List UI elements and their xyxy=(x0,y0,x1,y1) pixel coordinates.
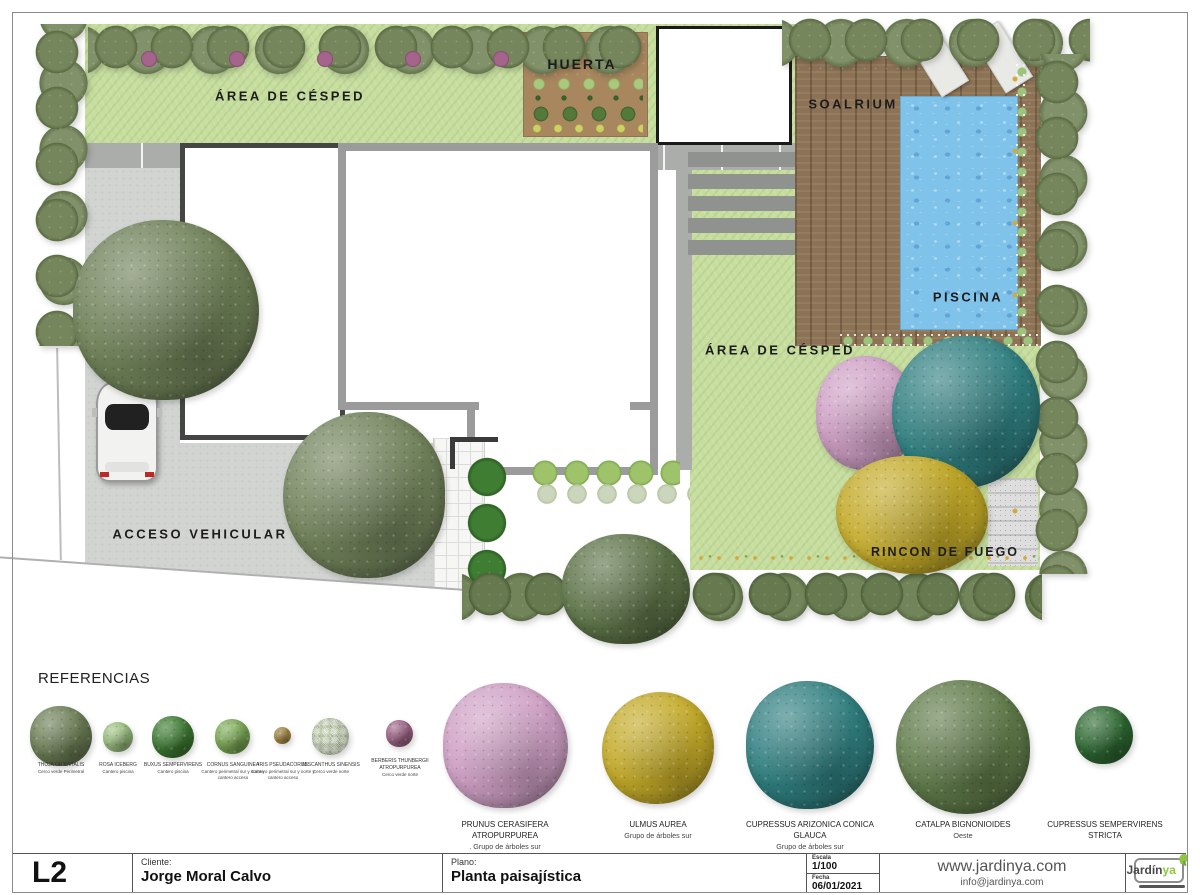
swatch-buxus-sempervirens xyxy=(152,716,194,758)
plan-cell: Plano: Planta paisajística xyxy=(442,854,807,893)
swatch-cornus-sanguinea xyxy=(215,719,250,754)
email-text: info@jardinya.com xyxy=(879,877,1125,888)
car-windshield xyxy=(105,404,149,430)
contact-cell: www.jardinya.com info@jardinya.com xyxy=(879,854,1126,893)
garage-building xyxy=(656,26,792,145)
car-rear xyxy=(105,462,149,472)
references-title: REFERENCIAS xyxy=(38,670,150,687)
ref-label-large: ULMUS AUREA Grupo de árboles sur xyxy=(573,820,743,841)
label-lawn-east: ÁREA DE CÉSPED xyxy=(705,343,855,358)
sheet-code: L2 xyxy=(12,854,132,892)
title-block: L2 Cliente: Jorge Moral Calvo Plano: Pla… xyxy=(12,853,1186,893)
east-hedge-cupressus xyxy=(1024,54,1090,574)
client-name: Jorge Moral Calvo xyxy=(141,868,271,885)
ref-label: BERBERIS THUNBERGII ATROPURPUREA Cerco v… xyxy=(365,758,435,778)
tree-catalpa-south xyxy=(283,412,445,578)
date-row: Fecha 06/01/2021 xyxy=(806,873,879,893)
plan-name: Planta paisajística xyxy=(451,868,581,885)
scale-row: Escala 1/100 xyxy=(806,854,879,873)
swatch-catalpa-bignonioides xyxy=(896,680,1030,814)
scale-value: 1/100 xyxy=(812,861,837,872)
site-boundary-west xyxy=(56,348,62,560)
website-text: www.jardinya.com xyxy=(879,858,1125,876)
date-value: 06/01/2021 xyxy=(812,881,862,892)
swatch-miscanthus-sinensis xyxy=(312,718,349,755)
label-huerta: HUERTA xyxy=(547,56,616,72)
label-acceso-vehicular: ACCESO VEHICULAR xyxy=(112,527,287,542)
ref-label-large: PRUNUS CERASIFERA ATROPURPUREA . Grupo d… xyxy=(440,820,570,851)
swatch-iris-pseudacorus xyxy=(274,727,291,744)
berberis-cluster-row xyxy=(105,46,555,72)
huerta-row-seedlings xyxy=(528,93,643,103)
wall-corner xyxy=(450,437,498,442)
label-soalrium: SOALRIUM xyxy=(808,97,897,112)
label-lawn-north: ÁREA DE CÉSPED xyxy=(215,89,365,104)
car-mirror xyxy=(157,408,162,417)
car-taillight xyxy=(100,472,109,477)
drawing-sheet: ÁREA DE CÉSPED HUERTA SOALRIUM PISCINA Á… xyxy=(0,0,1200,895)
plan-label: Plano: xyxy=(451,857,477,867)
swatch-rosa-iceberg xyxy=(103,722,133,752)
sheet-code-cell: L2 xyxy=(12,854,133,893)
car-taillight xyxy=(145,472,154,477)
ref-label-large: CUPRESSUS SEMPERVIRENS STRICTA xyxy=(1030,820,1180,842)
swatch-cupressus-arizonica xyxy=(746,681,874,809)
garden-steps xyxy=(688,152,800,256)
plan-canvas: ÁREA DE CÉSPED HUERTA SOALRIUM PISCINA Á… xyxy=(0,0,1200,650)
tree-south-hedge-large xyxy=(562,534,690,644)
logo-cell: Jardínya xyxy=(1125,854,1186,893)
swatch-cupressus-sempervirens xyxy=(1075,706,1133,764)
miscanthus-row xyxy=(532,480,690,508)
car-mirror xyxy=(92,408,97,417)
swatch-berberis-thunbergii xyxy=(386,720,413,747)
client-label: Cliente: xyxy=(141,857,172,867)
tree-catalpa-west xyxy=(73,220,259,400)
ref-label-large: CATALPA BIGNONIOIDES Oeste xyxy=(878,820,1048,841)
swatch-thuja-orientalis xyxy=(30,706,92,766)
logo-base-bar xyxy=(1139,885,1185,888)
logo-wordmark: Jardínya xyxy=(1127,863,1176,877)
ref-label-large: CUPRESSUS ARIZONICA CONICA GLAUCA Grupo … xyxy=(745,820,875,851)
iris-flower-column xyxy=(1008,70,1022,550)
swatch-ulmus-aurea xyxy=(602,692,714,804)
label-piscina: PISCINA xyxy=(933,290,1003,305)
huerta-row-ferns xyxy=(528,103,643,125)
house-interior-patch xyxy=(479,402,630,410)
south-hedge xyxy=(462,556,1042,632)
references-section: REFERENCIAS THUJA ORIENTALIS Cerco verde… xyxy=(0,650,1200,850)
label-rincon-de-fuego: RINCON DE FUEGO xyxy=(871,545,1019,559)
swatch-prunus-cerasifera xyxy=(443,683,568,808)
client-cell: Cliente: Jorge Moral Calvo xyxy=(132,854,443,893)
scale-date-cell: Escala 1/100 Fecha 06/01/2021 xyxy=(806,854,880,893)
jardinya-logo: Jardínya xyxy=(1127,858,1185,888)
house-main-wing xyxy=(338,143,658,410)
huerta-row-greens xyxy=(528,123,643,134)
